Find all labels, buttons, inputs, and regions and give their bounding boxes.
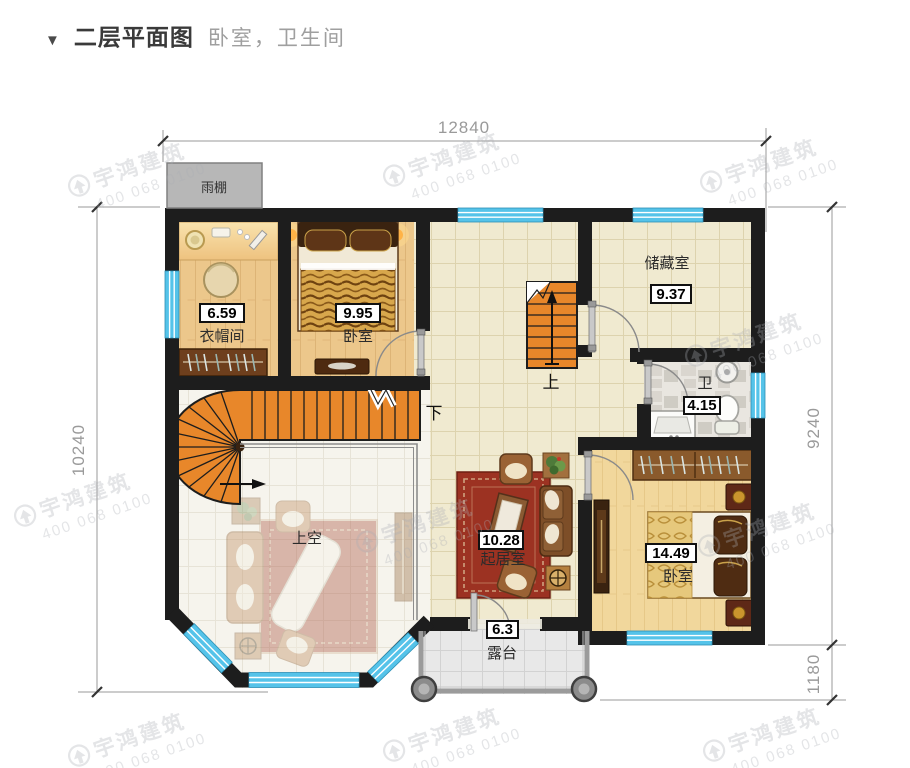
cloakroom-stool [204,263,238,297]
bedroom1-bench [315,359,369,374]
title-marker-icon: ▼ [45,32,60,49]
svg-text:9.95: 9.95 [343,305,372,322]
svg-text:9240: 9240 [804,407,823,449]
wall-bath-bottom [578,437,765,450]
terrace-column-right [572,677,596,701]
living-plant [543,453,569,478]
window-left-cloakroom [165,271,179,338]
svg-text:9.37: 9.37 [656,286,685,303]
svg-text:衣帽间: 衣帽间 [199,328,244,345]
bedroom2-dresser [594,500,609,593]
wall-bedroom2-left [578,500,592,631]
title-text: 二层平面图 [74,18,194,52]
living-armchair-top [500,454,532,484]
svg-text:6.3: 6.3 [492,621,513,638]
floor-plan-page: ▼ 二层平面图 卧室，卫生间 [0,0,910,768]
svg-text:1180: 1180 [804,654,823,695]
sink [650,411,695,440]
window-top-storage [633,208,703,222]
svg-text:6.59: 6.59 [207,305,236,322]
label-stairs-up: 上 [543,373,560,392]
window-right-bathroom [751,373,765,418]
window-bay-bottom [249,673,359,688]
svg-text:露台: 露台 [487,645,517,662]
svg-text:储藏室: 储藏室 [644,255,689,272]
page-title: ▼ 二层平面图 卧室，卫生间 [45,18,346,52]
wall-hall-storage [578,222,592,305]
canopy-label: 雨棚 [201,180,227,195]
svg-text:卧室: 卧室 [663,568,693,585]
label-void: 上空 [292,530,322,547]
cloakroom-wardrobe [179,349,267,376]
svg-text:10240: 10240 [69,424,88,476]
title-subtitle: 卧室，卫生间 [208,22,346,52]
stairs-upper-flight [527,282,577,368]
svg-text:4.15: 4.15 [687,397,716,414]
wall-right [751,208,765,645]
svg-text:14.49: 14.49 [652,545,690,562]
wall-cloak-bed1-bottom [165,376,430,390]
wall-left [165,208,179,620]
living-sofa [540,486,572,556]
wall-terrace-left [430,617,470,631]
terrace-column-left [412,677,436,701]
window-bottom-bedroom2 [627,631,712,645]
wall-terrace-right [540,617,592,631]
living-side-table [546,566,570,590]
floor-plan-drawing: 宇鸿建筑 400 068 0100 [0,0,910,768]
svg-text:卫: 卫 [697,375,712,392]
svg-text:起居室: 起居室 [480,551,525,568]
label-living: 10.28 起居室 [479,531,526,568]
wall-cloak-bed1-divider [278,222,291,376]
window-top-hall [458,208,543,222]
svg-text:卧室: 卧室 [343,328,373,345]
wall-bedroom1-right [416,222,430,331]
floor-corridor [585,348,645,443]
svg-text:上空: 上空 [292,530,322,547]
bedroom2-wardrobe [633,450,753,480]
label-stairs-down: 下 [426,404,443,423]
